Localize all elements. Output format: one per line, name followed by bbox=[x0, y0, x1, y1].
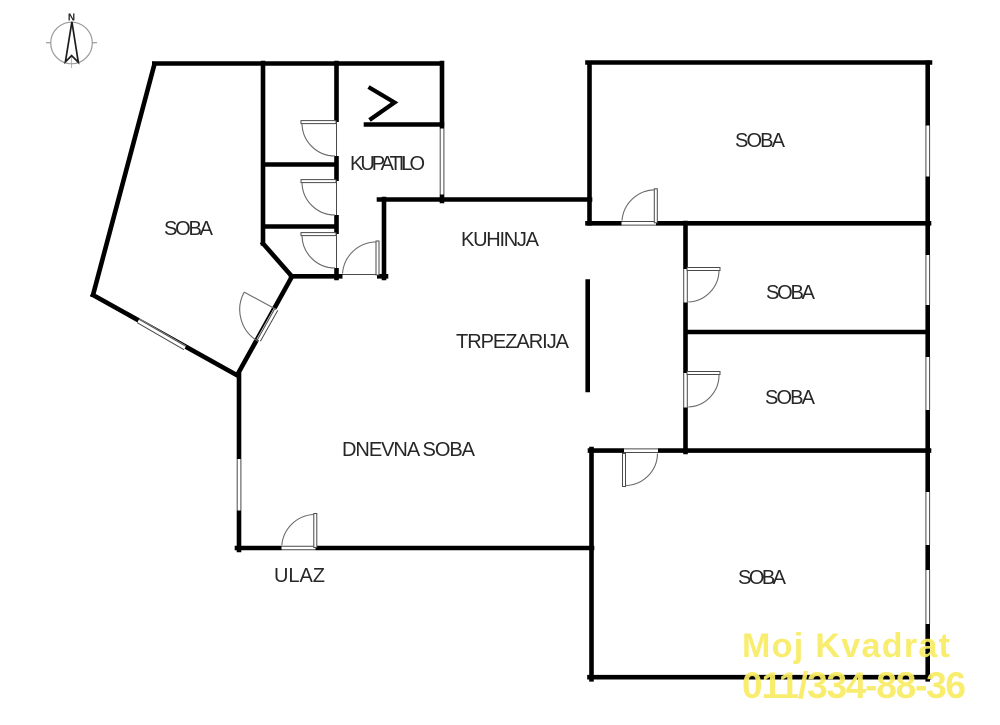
svg-text:SOBA: SOBA bbox=[765, 387, 816, 409]
svg-text:TRPEZARIJA: TRPEZARIJA bbox=[456, 331, 570, 353]
svg-text:N: N bbox=[68, 13, 75, 24]
svg-text:SOBA: SOBA bbox=[164, 218, 214, 240]
svg-text:DNEVNA SOBA: DNEVNA SOBA bbox=[342, 439, 476, 461]
svg-text:KUPATILO: KUPATILO bbox=[350, 153, 425, 175]
svg-text:011/334-88-36: 011/334-88-36 bbox=[742, 665, 966, 706]
svg-text:SOBA: SOBA bbox=[766, 282, 816, 304]
svg-text:SOBA: SOBA bbox=[735, 130, 786, 152]
svg-text:Moj Kvadrat: Moj Kvadrat bbox=[742, 627, 950, 665]
svg-text:KUHINJA: KUHINJA bbox=[461, 229, 540, 251]
svg-text:ULAZ: ULAZ bbox=[274, 565, 325, 587]
svg-text:SOBA: SOBA bbox=[738, 567, 787, 589]
